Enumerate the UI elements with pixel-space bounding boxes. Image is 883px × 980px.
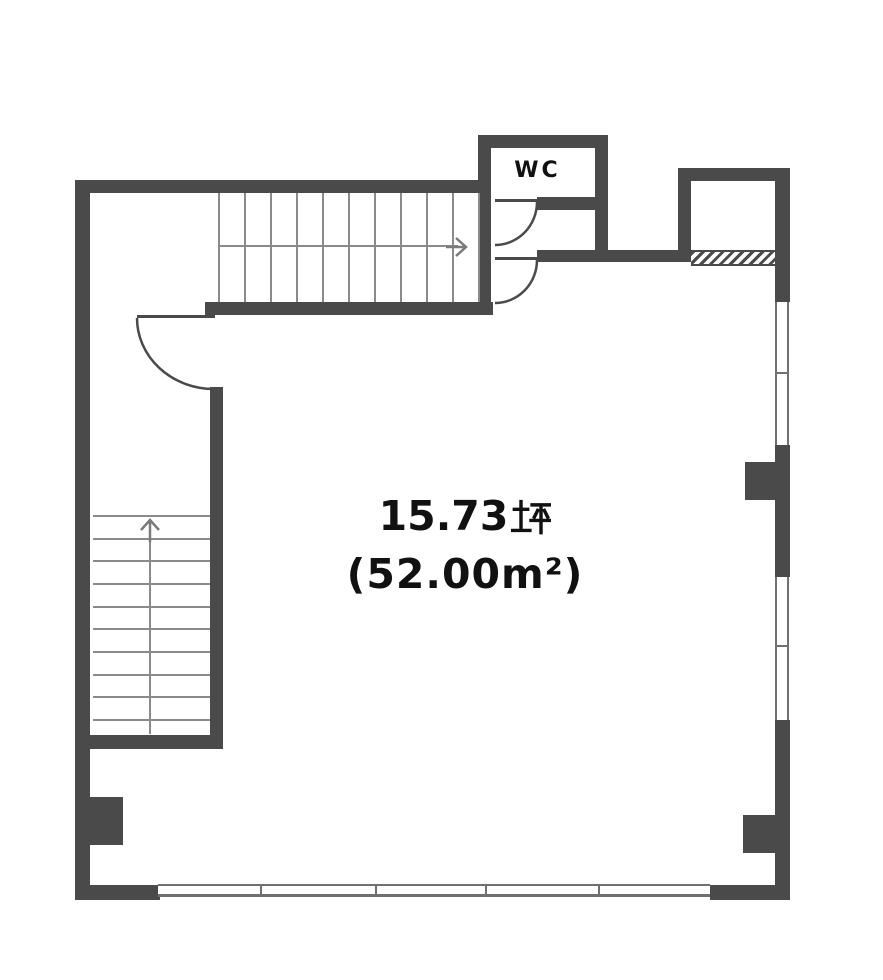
stair-tread [93, 560, 213, 562]
window-mullion [375, 886, 377, 894]
area-m2-label: (52.00m²) [265, 550, 665, 598]
stair-tread [93, 538, 213, 540]
pillar-right-upper [745, 462, 790, 500]
window-mullion [485, 886, 487, 894]
area-tsubo-label: 15.73 [265, 492, 665, 540]
stair-tread [400, 193, 402, 303]
wc-label: WC [500, 155, 575, 185]
area-tsubo-value: 15.73 [379, 496, 509, 537]
stair-tread [270, 193, 272, 303]
wall-bottom-left [75, 885, 160, 900]
wc-wall-inner [537, 197, 595, 210]
pillar-right-lower [743, 815, 790, 853]
stair-tread [93, 606, 213, 608]
stair-tread [374, 193, 376, 303]
stair-tread [93, 696, 213, 698]
stair-tread [93, 583, 213, 585]
top-stairs-treads [218, 193, 480, 303]
stair-tread [348, 193, 350, 303]
window-right-upper [775, 302, 789, 445]
stair-tread [93, 628, 213, 630]
main-door-leaf [137, 315, 215, 318]
wall-top [75, 180, 490, 193]
wc-door-swing-arc [495, 202, 537, 245]
shutter-hatch [691, 250, 775, 266]
stair-tread [478, 193, 480, 303]
wall-right-upper [775, 168, 790, 302]
pillar-bottom-left [90, 797, 123, 845]
window-mullion [777, 372, 787, 374]
stair-tread [93, 674, 213, 676]
window-mullion [260, 886, 262, 894]
stair-tread [296, 193, 298, 303]
vestibule-door-leaf [495, 257, 537, 260]
window-mullion [777, 645, 787, 647]
vestibule-door-swing-arc [495, 260, 537, 303]
wc-door-leaf [495, 199, 537, 202]
window-right-lower [775, 577, 789, 720]
top-stairs-bottom-wall [205, 302, 493, 315]
floor-plan: WC 15.73 [0, 0, 883, 980]
stair-tread [426, 193, 428, 303]
window-mullion [598, 886, 600, 894]
area-m2-value: (52.00m²) [347, 554, 584, 595]
wall-right-lower [775, 720, 790, 900]
wing-wall-top [678, 168, 790, 181]
left-stairs-bottom-wall [75, 735, 223, 749]
wc-wall-right [595, 135, 608, 262]
stair-tread [93, 651, 213, 653]
vestibule-wall [537, 250, 691, 262]
wing-wall-left [678, 168, 691, 262]
door-jamb-wall [210, 387, 223, 747]
stair-tread [244, 193, 246, 303]
left-stairs-centerline [149, 532, 151, 734]
stair-tread [452, 193, 454, 303]
wc-wall-top [478, 135, 608, 148]
main-door-swing-arc [137, 318, 214, 389]
top-stairs-centerline [218, 245, 458, 247]
tsubo-unit-glyph [511, 496, 551, 536]
stair-tread [218, 193, 220, 303]
stair-tread [93, 515, 213, 517]
left-stairs-treads [93, 515, 213, 721]
stair-tread [93, 719, 213, 721]
wall-left [75, 180, 90, 900]
window-bottom [158, 884, 710, 897]
stair-tread [322, 193, 324, 303]
